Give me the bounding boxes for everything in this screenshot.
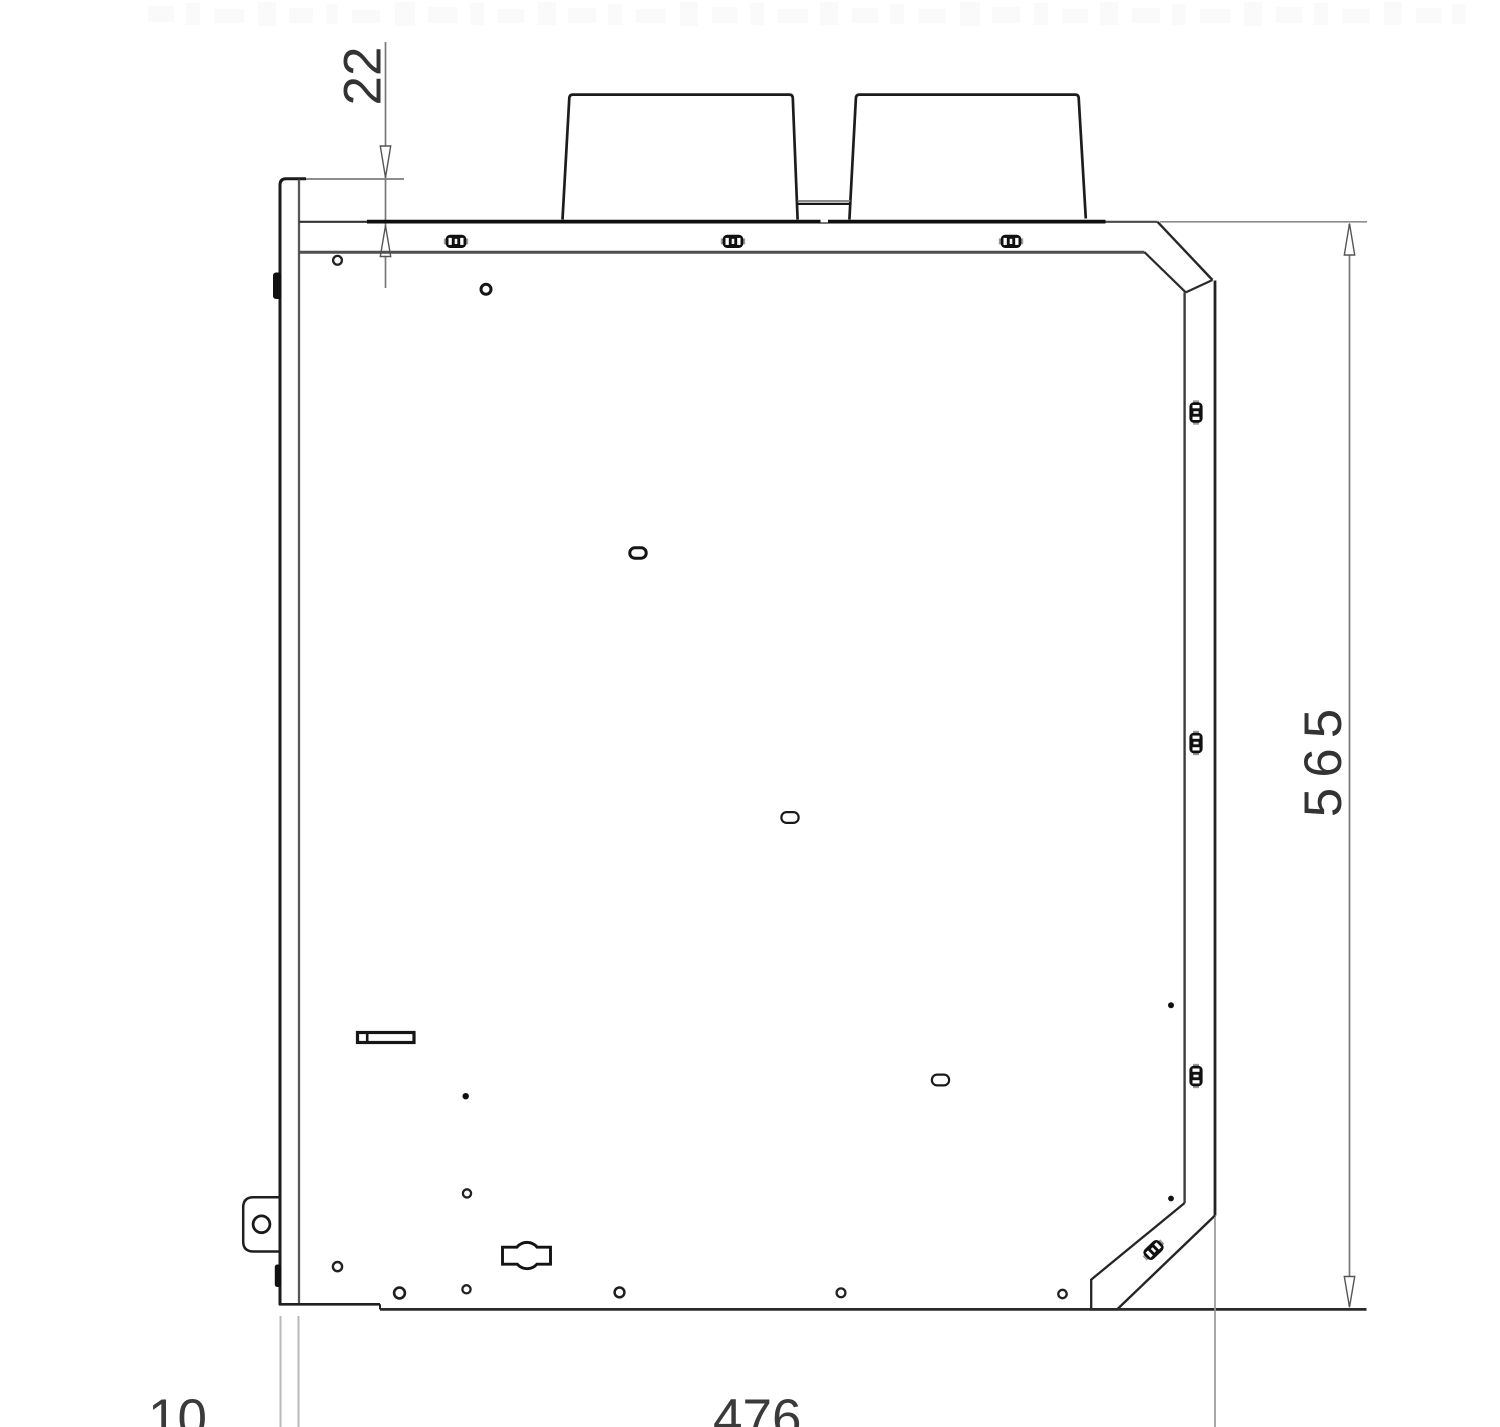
svg-text:565: 565 xyxy=(1294,699,1353,817)
svg-text:10: 10 xyxy=(148,1389,207,1427)
svg-text:22: 22 xyxy=(334,47,393,106)
svg-text:476: 476 xyxy=(713,1389,801,1427)
